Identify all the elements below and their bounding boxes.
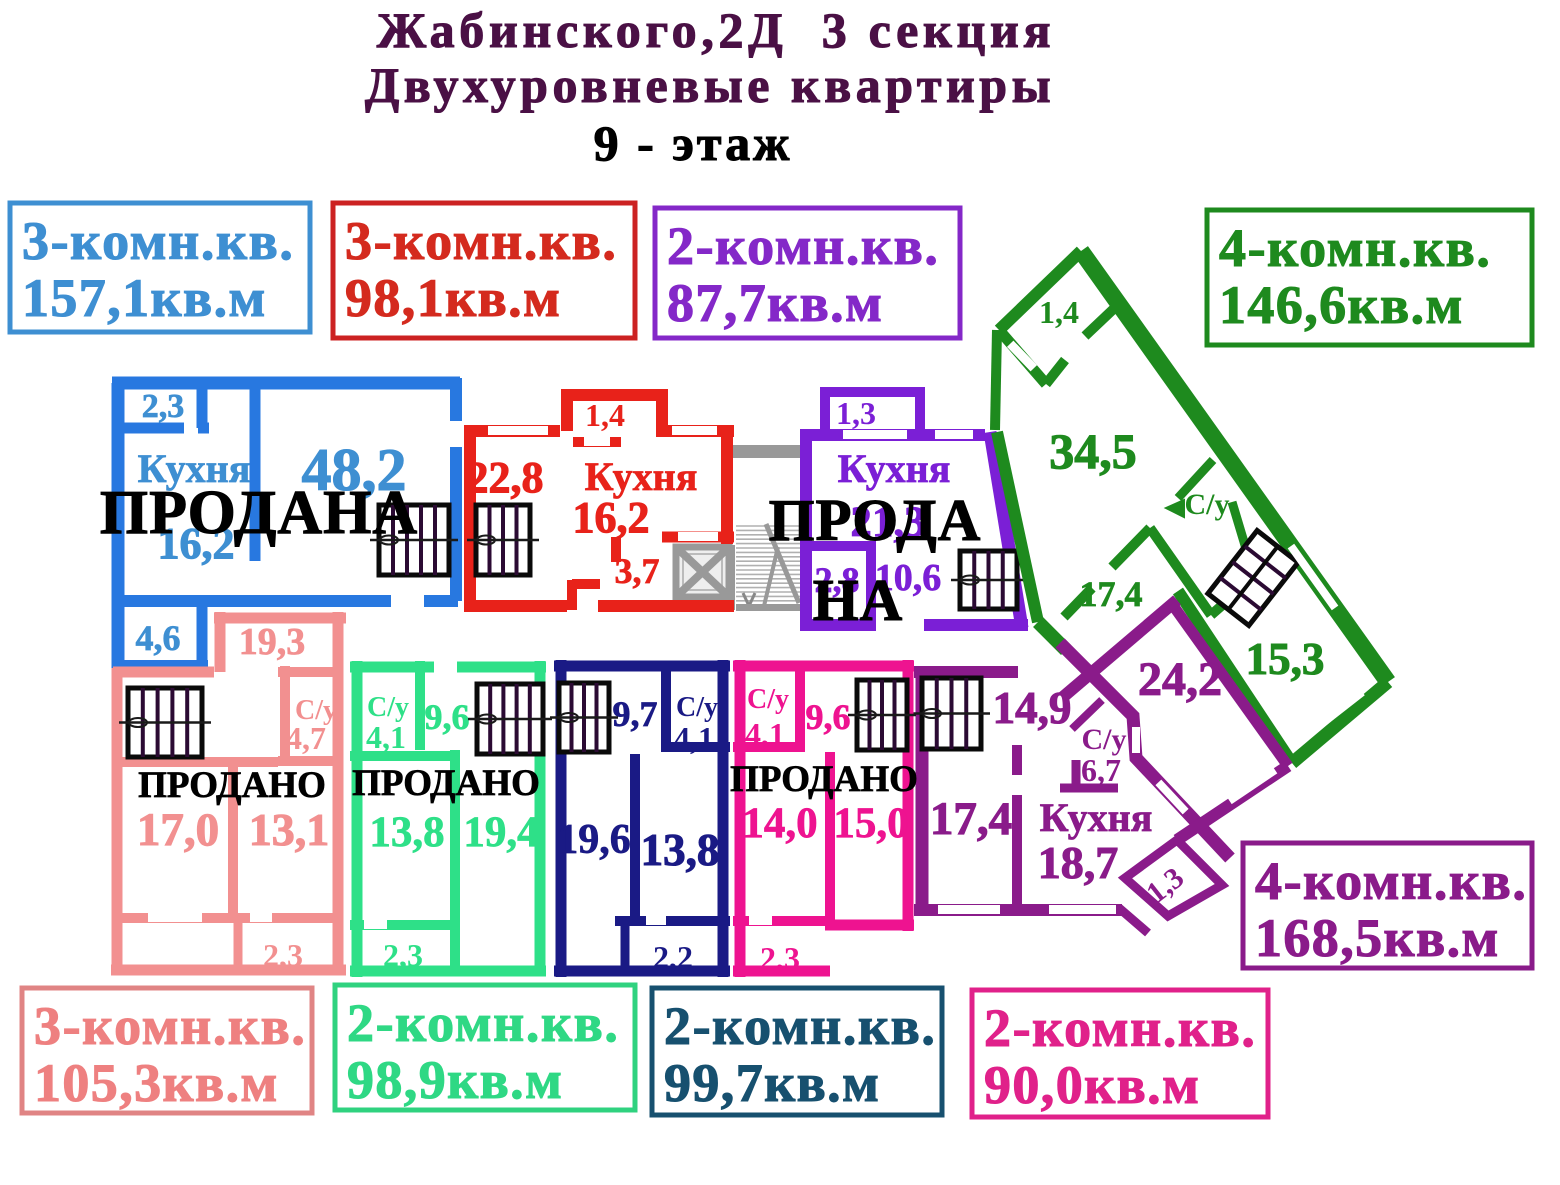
- svg-text:13,1: 13,1: [249, 804, 330, 855]
- svg-text:2,2: 2,2: [653, 939, 693, 975]
- svg-text:9,6: 9,6: [425, 697, 470, 737]
- svg-text:2,3: 2,3: [760, 940, 800, 976]
- svg-text:3-комн.кв.: 3-комн.кв.: [345, 211, 618, 271]
- svg-text:2,3: 2,3: [383, 937, 423, 973]
- svg-text:2-комн.кв.: 2-комн.кв.: [984, 998, 1257, 1058]
- svg-text:14,9: 14,9: [993, 683, 1072, 733]
- svg-text:2,3: 2,3: [142, 388, 185, 425]
- svg-text:3-комн.кв.: 3-комн.кв.: [34, 996, 307, 1056]
- svg-text:17,4: 17,4: [930, 793, 1012, 845]
- svg-text:98,1кв.м: 98,1кв.м: [345, 268, 561, 328]
- svg-text:146,6кв.м: 146,6кв.м: [1219, 275, 1464, 335]
- svg-text:4,1: 4,1: [674, 720, 714, 756]
- svg-text:15,0: 15,0: [833, 800, 908, 847]
- svg-text:90,0кв.м: 90,0кв.м: [984, 1055, 1200, 1115]
- svg-text:Кухня: Кухня: [838, 446, 951, 491]
- svg-text:24,2: 24,2: [1138, 653, 1222, 706]
- svg-text:19,6: 19,6: [557, 817, 631, 863]
- svg-text:87,7кв.м: 87,7кв.м: [667, 273, 883, 333]
- svg-text:4-комн.кв.: 4-комн.кв.: [1219, 218, 1492, 278]
- svg-text:4-комн.кв.: 4-комн.кв.: [1255, 851, 1528, 911]
- svg-text:19,4: 19,4: [463, 809, 538, 856]
- svg-text:4,7: 4,7: [286, 720, 326, 756]
- svg-text:2-комн.кв.: 2-комн.кв.: [667, 216, 940, 276]
- svg-text:105,3кв.м: 105,3кв.м: [34, 1053, 279, 1113]
- svg-text:99,7кв.м: 99,7кв.м: [664, 1053, 880, 1113]
- svg-text:2-комн.кв.: 2-комн.кв.: [347, 993, 620, 1053]
- svg-text:ПРОДАНО: ПРОДАНО: [138, 765, 326, 806]
- svg-text:3,7: 3,7: [615, 551, 660, 591]
- svg-text:1,3: 1,3: [836, 395, 876, 431]
- svg-text:ПРОДАНО: ПРОДАНО: [730, 759, 918, 800]
- svg-text:22,8: 22,8: [467, 453, 544, 502]
- svg-text:13,8: 13,8: [369, 809, 444, 856]
- svg-text:ПРОДАНО: ПРОДАНО: [352, 763, 540, 804]
- svg-text:3-комн.кв.: 3-комн.кв.: [22, 211, 295, 271]
- svg-text:14,0: 14,0: [742, 800, 817, 847]
- svg-text:Кухня: Кухня: [1040, 795, 1153, 840]
- svg-text:ПРОДАНА: ПРОДАНА: [100, 479, 418, 547]
- svg-text:157,1кв.м: 157,1кв.м: [22, 268, 267, 328]
- svg-text:16,2: 16,2: [573, 493, 650, 542]
- svg-text:Двухуровневые квартиры: Двухуровневые квартиры: [365, 57, 1055, 113]
- svg-text:Жабинского,2Д 3 секция: Жабинского,2Д 3 секция: [377, 2, 1056, 58]
- svg-text:17,0: 17,0: [137, 804, 219, 856]
- svg-text:4,1: 4,1: [745, 716, 785, 752]
- svg-text:9,6: 9,6: [806, 697, 851, 737]
- svg-text:4,6: 4,6: [136, 618, 181, 658]
- svg-text:С/у: С/у: [676, 692, 718, 723]
- svg-text:ПРОДА: ПРОДА: [769, 487, 982, 553]
- svg-text:15,3: 15,3: [1246, 634, 1325, 684]
- svg-text:9,7: 9,7: [613, 694, 658, 734]
- svg-text:НА: НА: [813, 567, 904, 633]
- svg-text:2,3: 2,3: [263, 937, 303, 973]
- svg-text:13,8: 13,8: [641, 825, 720, 875]
- svg-text:1,4: 1,4: [585, 397, 625, 433]
- svg-text:2-комн.кв.: 2-комн.кв.: [664, 996, 937, 1056]
- svg-text:9 - этаж: 9 - этаж: [594, 115, 793, 171]
- svg-text:17,4: 17,4: [1080, 574, 1143, 614]
- svg-text:168,5кв.м: 168,5кв.м: [1255, 908, 1500, 968]
- svg-text:4,1: 4,1: [366, 719, 406, 755]
- svg-text:С/у: С/у: [747, 684, 789, 715]
- svg-text:6,7: 6,7: [1081, 752, 1121, 788]
- svg-text:1,4: 1,4: [1039, 294, 1079, 330]
- svg-text:98,9кв.м: 98,9кв.м: [347, 1050, 563, 1110]
- svg-text:34,5: 34,5: [1049, 423, 1137, 479]
- svg-text:18,7: 18,7: [1038, 837, 1119, 888]
- svg-text:С/у: С/у: [1185, 488, 1230, 521]
- svg-text:19,3: 19,3: [239, 621, 306, 663]
